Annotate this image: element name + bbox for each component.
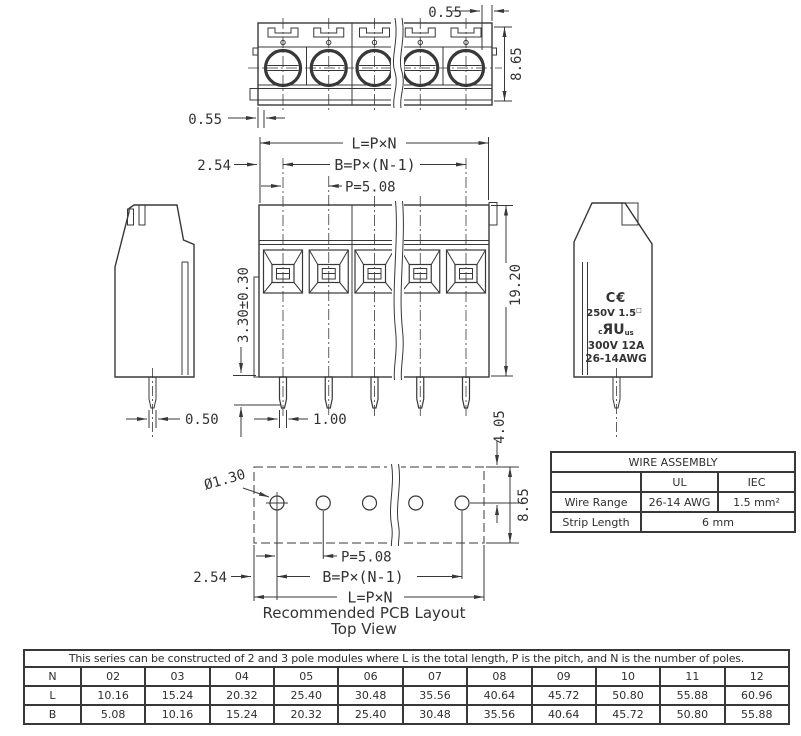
dimension-value-cell: 11	[660, 667, 724, 686]
dimension-value-cell: 30.48	[338, 686, 402, 705]
pcb-caption-view: Top View	[330, 620, 397, 638]
top-view-poles	[266, 18, 484, 110]
dimension-table-row-b: B 5.0810.1615.2420.3225.4030.4835.5640.6…	[24, 705, 789, 724]
dimension-value-cell: 35.56	[403, 686, 467, 705]
wire-assembly-title: WIRE ASSEMBLY	[551, 452, 795, 472]
rating-ul: 300V 12A	[588, 340, 645, 352]
row-label: B	[24, 705, 81, 724]
top-view	[228, 5, 512, 128]
rating-iec: 250V 1.5	[586, 308, 636, 319]
wire-range-row: Wire Range 26-14 AWG 1.5 mm²	[551, 492, 795, 512]
dimension-value-cell: 03	[145, 667, 209, 686]
side-view-left	[115, 205, 194, 437]
dimension-value-cell: 5.08	[81, 705, 145, 724]
col-header-iec: IEC	[718, 472, 795, 492]
dimension-value-cell: 12	[725, 667, 789, 686]
dimension-table-row-l: L 10.1615.2420.3225.4030.4835.5640.6445.…	[24, 686, 789, 705]
dimension-value-cell: 07	[403, 667, 467, 686]
dimension-value-cell: 25.40	[274, 686, 338, 705]
strip-length-label: Strip Length	[551, 512, 641, 532]
dimension-value-cell: 50.80	[660, 705, 724, 724]
dimension-value-cell: 08	[467, 667, 531, 686]
dim-top-height: 8.65	[509, 47, 525, 81]
dimension-value-cell: 06	[338, 667, 402, 686]
pcb-holes	[266, 492, 469, 514]
dimension-value-cell: 50.80	[596, 686, 660, 705]
wire-range-label: Wire Range	[551, 492, 641, 512]
dimension-value-cell: 10.16	[81, 686, 145, 705]
dimension-value-cell: 20.32	[274, 705, 338, 724]
dimension-value-cell: 10.16	[145, 705, 209, 724]
wire-awg: 26-14AWG	[585, 353, 646, 365]
dimension-value-cell: 25.40	[338, 705, 402, 724]
pcb-dim-edge: 2.54	[193, 570, 227, 586]
pcb-hole-diameter: Ø1.30	[202, 467, 247, 494]
drawing-canvas: 0.55 8.65 0.55	[0, 0, 801, 648]
product-markings: C€ 250V 1.5□ cЯUus 300V 12A 26-14AWG	[585, 291, 646, 365]
dim-pin-protrusion: 3.30±0.30	[236, 267, 252, 343]
ce-mark-icon: C€	[606, 291, 627, 306]
pcb-dim-spacing: B=P×(N-1)	[322, 568, 403, 586]
dimension-value-cell: 55.88	[660, 686, 724, 705]
wire-assembly-header-row: UL IEC	[551, 472, 795, 492]
dimension-value-cell: 55.88	[725, 705, 789, 724]
dimension-value-cell: 35.56	[467, 705, 531, 724]
wire-range-ul: 26-14 AWG	[641, 492, 718, 512]
wire-range-iec: 1.5 mm²	[718, 492, 795, 512]
dimension-value-cell: 30.48	[403, 705, 467, 724]
dimension-value-cell: 20.32	[210, 686, 274, 705]
dimension-value-cell: 04	[210, 667, 274, 686]
dim-edge: 2.54	[197, 158, 231, 174]
dim-pitch: P=5.08	[345, 180, 396, 196]
row-label: L	[24, 686, 81, 705]
dimension-table-row-n: N 0203040506070809101112	[24, 667, 789, 686]
dimension-value-cell: 05	[274, 667, 338, 686]
dim-body-height: 19.20	[508, 264, 524, 306]
dimension-table-note: This series can be constructed of 2 and …	[24, 650, 789, 667]
dimension-table: This series can be constructed of 2 and …	[23, 649, 790, 725]
row-label: N	[24, 667, 81, 686]
dimension-value-cell: 40.64	[532, 705, 596, 724]
wire-assembly-blank-cell	[551, 472, 641, 492]
dimension-value-cell: 09	[532, 667, 596, 686]
pcb-dim-height: 8.65	[516, 488, 532, 522]
dim-bottom-gap: 0.55	[188, 112, 222, 128]
dimension-value-cell: 10	[596, 667, 660, 686]
front-view-poles	[264, 158, 486, 417]
pcb-dim-row-offset: 4.05	[492, 410, 508, 444]
wire-assembly-table: WIRE ASSEMBLY UL IEC Wire Range 26-14 AW…	[550, 451, 796, 533]
dim-top-gap: 0.55	[428, 5, 462, 21]
dimension-value-cell: 02	[81, 667, 145, 686]
technical-drawing-sheet: 0.55 8.65 0.55	[0, 0, 801, 736]
dim-spacing: B=P×(N-1)	[334, 156, 415, 174]
svg-text:250V 1.5□: 250V 1.5□	[586, 307, 641, 319]
ul-recognized-icon: cЯUus	[598, 322, 633, 338]
dimension-table-note-row: This series can be constructed of 2 and …	[24, 650, 789, 667]
dimension-value-cell: 40.64	[467, 686, 531, 705]
side-view-right	[574, 203, 652, 437]
dimension-value-cell: 15.24	[210, 705, 274, 724]
strip-length-row: Strip Length 6 mm	[551, 512, 795, 532]
dim-pin-width: 1.00	[313, 412, 347, 428]
col-header-ul: UL	[641, 472, 718, 492]
pcb-dim-pitch: P=5.08	[341, 550, 392, 566]
dimension-value-cell: 60.96	[725, 686, 789, 705]
rating-iec-sup: □	[636, 307, 642, 314]
dim-total-length: L=P×N	[351, 135, 396, 153]
dimension-value-cell: 15.24	[145, 686, 209, 705]
dimension-value-cell: 45.72	[596, 705, 660, 724]
wire-assembly-title-row: WIRE ASSEMBLY	[551, 452, 795, 472]
strip-length-value: 6 mm	[641, 512, 795, 532]
dim-pin-thickness: 0.50	[185, 412, 219, 428]
dimension-value-cell: 45.72	[532, 686, 596, 705]
